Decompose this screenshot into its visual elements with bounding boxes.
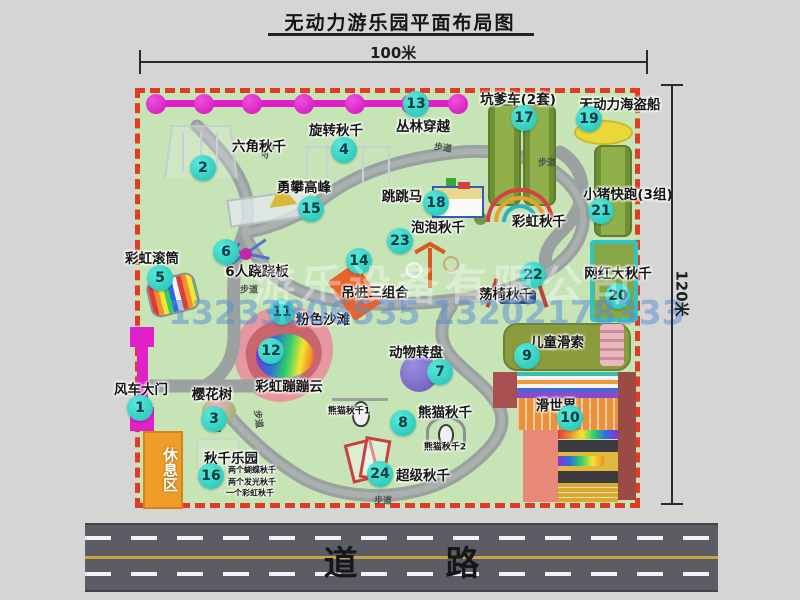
road-label: 道 路	[85, 536, 718, 585]
bubble-swing-ring-2	[443, 256, 459, 272]
top-dimension-label: 100米	[370, 42, 416, 63]
jumping-horse-toy	[458, 182, 470, 189]
slide-world-rainbow-strip-2	[558, 456, 604, 466]
hexagon-swing-rope-3	[216, 132, 218, 172]
top-dimension-tick-right	[646, 50, 648, 74]
jumping-horse-bed	[432, 186, 484, 218]
slide-world-left-wall	[493, 372, 517, 408]
title-underline	[268, 33, 534, 36]
slide-world-yellow-deck-2	[558, 483, 618, 502]
slide-world-pink-slide	[523, 430, 558, 502]
slide-world-lanes	[517, 372, 618, 398]
park-plan-page: 无动力游乐园平面布局图 100米 120米 休息区	[0, 0, 800, 600]
bubble-swing-ring-1	[406, 262, 422, 278]
bubble-swing-pole	[428, 248, 432, 288]
animal-carousel-disc	[400, 354, 438, 392]
slide-world-deck	[517, 398, 618, 430]
jungle-crossing-rope	[150, 100, 462, 107]
page-title: 无动力游乐园平面布局图	[0, 8, 800, 35]
pirate-ship-boat	[574, 120, 633, 145]
right-dimension-tick-top	[661, 84, 683, 86]
slide-world-right-wall	[618, 372, 636, 500]
rotating-swing-post-2	[326, 144, 328, 182]
rotating-swing-beam	[306, 146, 390, 148]
jumping-horse-flag	[446, 178, 456, 186]
rotating-swing-post-1	[306, 148, 308, 182]
rotating-swing-post-3	[362, 148, 364, 184]
piggy-run-track	[594, 145, 632, 237]
hexagon-swing-rope-2	[200, 132, 202, 176]
climbing-pyramid	[267, 182, 298, 208]
windmill-gate-top	[130, 327, 154, 347]
rest-area-label: 休息区	[145, 437, 181, 501]
top-dimension-tick-left	[139, 50, 141, 74]
panda-swing1-panda	[352, 401, 370, 427]
rest-area-box: 休息区	[143, 431, 183, 509]
swing-chair-seat	[498, 290, 536, 304]
hexagon-swing-rope-1	[182, 132, 184, 172]
panda-swing2-panda	[438, 424, 454, 446]
right-dimension-tick-bottom	[661, 503, 683, 505]
right-dimension-label: 120米	[672, 270, 693, 316]
windmill-gate-post	[137, 347, 148, 409]
slide-world-dark-strip-2	[558, 471, 618, 483]
swing-paradise-sketch	[196, 438, 240, 472]
slide-world-dark-strip-1	[558, 440, 618, 452]
zipline-tower	[600, 324, 624, 366]
rotating-swing-post-4	[388, 146, 390, 182]
windmill-gate-base	[130, 407, 154, 431]
slide-world-rainbow-strip-1	[558, 430, 618, 439]
seesaw-hub	[240, 248, 252, 260]
cherry-tree-foliage	[202, 398, 236, 424]
net-swing-area	[590, 240, 638, 322]
